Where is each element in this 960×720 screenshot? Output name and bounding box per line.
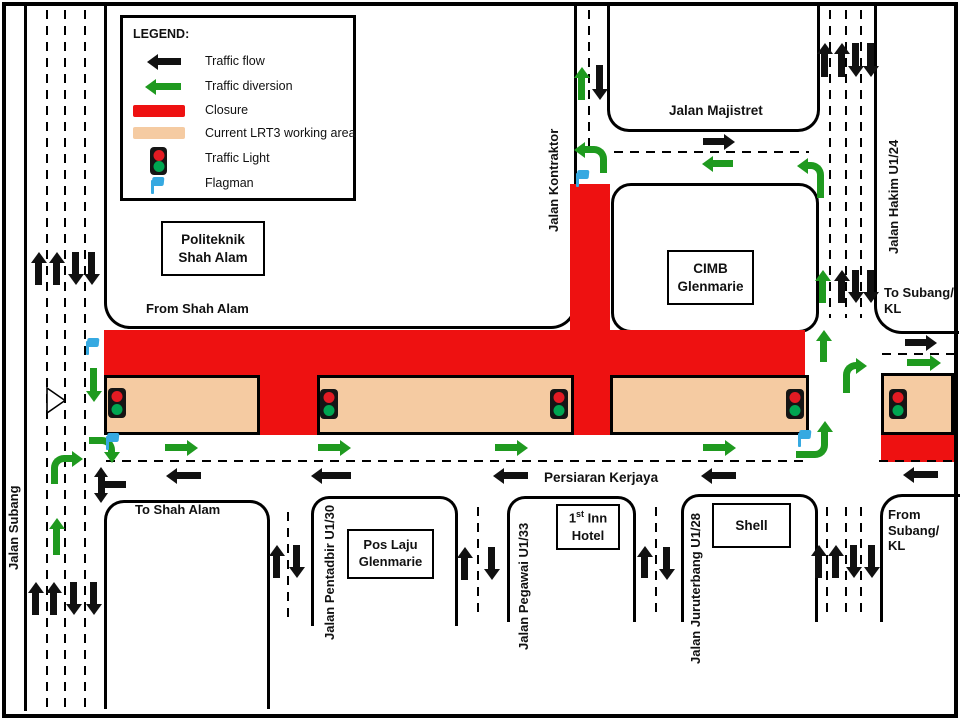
- legend-item-label: Traffic flow: [205, 54, 265, 68]
- politeknik-line2: Shah Alam: [178, 249, 247, 267]
- legend-item-label: Traffic diversion: [205, 79, 293, 93]
- diversion-turn-arrow: [808, 162, 824, 198]
- red-light: [324, 392, 335, 403]
- flagman-icon: [86, 338, 100, 355]
- lane-divider: [655, 507, 657, 613]
- legend-panel: LEGEND: Traffic flow Traffic diversion C…: [120, 15, 356, 201]
- red-light: [790, 392, 801, 403]
- traffic-flow-arrow: [488, 547, 495, 569]
- lane-divider: [588, 10, 590, 150]
- flag-cloth: [152, 177, 165, 186]
- traffic-diversion-arrow: [907, 359, 930, 366]
- traffic-flow-arrow: [596, 65, 603, 89]
- traffic-flow-arrow: [72, 252, 79, 274]
- traffic-light-icon: [320, 389, 338, 419]
- traffic-flow-arrow: [70, 582, 77, 604]
- jalan-majistret-label: Jalan Majistret: [669, 103, 763, 118]
- traffic-diversion-map: Politeknik Shah Alam CIMB Glenmarie Pos …: [0, 0, 960, 720]
- traffic-light-icon: [108, 388, 126, 418]
- green-light: [893, 405, 904, 416]
- flag-cloth: [799, 430, 812, 439]
- jalan-hakim-label: Jalan Hakim U1/24: [886, 140, 901, 254]
- traffic-flow-arrow: [90, 582, 97, 604]
- first-inn-line2: Hotel: [572, 528, 605, 545]
- jalan-pentadbir-label: Jalan Pentadbir U1/30: [322, 505, 337, 640]
- traffic-diversion-arrow: [703, 444, 725, 451]
- working-area-3: [610, 375, 809, 435]
- traffic-light-icon: [786, 389, 804, 419]
- to-subang-kl-label: To Subang/ KL: [884, 285, 954, 316]
- traffic-flow-arrow: [177, 472, 201, 479]
- jalan-subang-west-edge: [24, 4, 27, 711]
- traffic-flow-arrow: [703, 138, 724, 145]
- working-area-swatch: [133, 127, 185, 139]
- green-light: [112, 404, 123, 415]
- two-way-flow-arrow: [93, 467, 127, 502]
- traffic-flow-arrow: [867, 43, 874, 66]
- pos-laju-line1: Pos Laju: [363, 537, 417, 554]
- green-light: [153, 161, 164, 172]
- traffic-flow-arrow: [32, 593, 39, 615]
- working-area-1: [104, 375, 260, 435]
- from-subang-kl-label: From Subang/ KL: [888, 507, 939, 554]
- red-light: [153, 150, 164, 161]
- cimb-line1: CIMB: [693, 260, 728, 278]
- traffic-diversion-arrow: [165, 444, 187, 451]
- arrow-stem: [104, 481, 126, 488]
- legend-item-label: Flagman: [205, 176, 254, 190]
- to-shah-alam-label: To Shah Alam: [135, 502, 220, 517]
- first-inn-line1: 1st Inn: [569, 509, 607, 527]
- lane-divider: [477, 507, 479, 613]
- road-block-to-shah-alam: [104, 500, 270, 709]
- traffic-flow-arrow: [663, 547, 670, 569]
- traffic-flow-arrow: [712, 472, 736, 479]
- from-shah-alam-label: From Shah Alam: [146, 301, 249, 316]
- traffic-flow-arrow: [838, 54, 845, 77]
- first-inn-hotel-box: 1st Inn Hotel: [556, 504, 620, 550]
- traffic-flow-arrow: [905, 339, 926, 346]
- flagman-icon: [106, 433, 120, 450]
- traffic-flow-arrow: [641, 557, 648, 578]
- closure-east: [881, 434, 954, 462]
- traffic-flow-arrow: [88, 252, 95, 274]
- politeknik-line1: Politeknik: [181, 231, 245, 249]
- traffic-flow-arrow: [838, 281, 845, 303]
- closure-kontraktor: [570, 184, 610, 330]
- lane-divider: [46, 10, 48, 710]
- working-area-2: [317, 375, 574, 435]
- traffic-flow-arrow: [293, 545, 300, 567]
- traffic-diversion-arrow: [495, 444, 517, 451]
- red-light: [554, 392, 565, 403]
- yield-triangle-icon: [46, 387, 66, 414]
- center-line-persiaran-kerjaya: [106, 460, 804, 462]
- diversion-turn-arrow: [843, 362, 856, 393]
- pos-laju-line2: Glenmarie: [359, 554, 423, 571]
- red-light: [112, 391, 123, 402]
- lane-divider: [860, 507, 862, 613]
- flagman-icon: [576, 170, 590, 187]
- traffic-diversion-arrow: [820, 341, 827, 362]
- jalan-subang-label: Jalan Subang: [6, 485, 21, 570]
- traffic-flow-arrow: [868, 545, 875, 567]
- shell-label: Shell: [735, 517, 767, 535]
- green-light: [554, 405, 565, 416]
- jalan-pegawai-label: Jalan Pegawai U1/33: [516, 523, 531, 650]
- legend-item-label: Traffic Light: [205, 151, 270, 165]
- flag-cloth: [107, 433, 120, 442]
- closure-gap-2: [572, 375, 610, 435]
- traffic-diversion-arrow: [53, 529, 60, 555]
- red-light: [893, 392, 904, 403]
- politeknik-box: Politeknik Shah Alam: [161, 221, 265, 276]
- traffic-flow-arrow: [35, 263, 42, 285]
- traffic-flow-arrow: [504, 472, 528, 479]
- traffic-flow-arrow: [815, 556, 822, 578]
- arrowhead-down: [94, 493, 108, 503]
- traffic-flow-arrow: [852, 270, 859, 292]
- traffic-flow-arrow: [867, 270, 874, 292]
- closure-gap-1: [258, 375, 318, 435]
- flag-cloth: [577, 170, 590, 179]
- traffic-light-icon: [150, 147, 167, 175]
- traffic-flow-arrow: [821, 54, 828, 77]
- lane-divider: [860, 10, 862, 318]
- traffic-flow-arrow: [322, 472, 351, 479]
- green-light: [324, 405, 335, 416]
- traffic-light-icon: [550, 389, 568, 419]
- center-line-east-exit: [882, 353, 954, 355]
- diversion-turn-arrow: [585, 146, 607, 173]
- legend-item-label: Closure: [205, 103, 248, 117]
- traffic-light-icon: [889, 389, 907, 419]
- traffic-flow-arrow: [914, 471, 938, 478]
- flagman-icon: [798, 430, 812, 447]
- traffic-flow-arrow: [832, 556, 839, 578]
- flagman-icon: [151, 177, 165, 194]
- traffic-diversion-arrow: [578, 78, 585, 100]
- traffic-flow-arrow-icon: [158, 58, 181, 65]
- jalan-kontraktor-label: Jalan Kontraktor: [546, 129, 561, 232]
- center-line-persiaran-kerjaya-east: [879, 460, 956, 462]
- persiaran-kerjaya-label: Persiaran Kerjaya: [544, 470, 658, 485]
- traffic-flow-arrow: [461, 558, 468, 580]
- shell-box: Shell: [712, 503, 791, 548]
- traffic-flow-arrow: [50, 593, 57, 615]
- cimb-box: CIMB Glenmarie: [667, 250, 754, 305]
- legend-title: LEGEND:: [133, 27, 189, 41]
- legend-item-label: Current LRT3 working area: [205, 126, 356, 140]
- traffic-diversion-arrow: [713, 160, 733, 167]
- green-light: [790, 405, 801, 416]
- traffic-flow-arrow: [53, 263, 60, 285]
- traffic-diversion-arrow: [90, 368, 97, 391]
- traffic-diversion-arrow: [819, 281, 826, 303]
- lane-divider: [845, 507, 847, 613]
- jalan-juruterbang-label: Jalan Juruterbang U1/28: [688, 513, 703, 664]
- closure-swatch: [133, 105, 185, 117]
- traffic-flow-arrow: [273, 556, 280, 578]
- traffic-diversion-arrow: [318, 444, 340, 451]
- flag-cloth: [87, 338, 100, 347]
- cimb-line2: Glenmarie: [677, 278, 743, 296]
- traffic-flow-arrow: [850, 545, 857, 567]
- pos-laju-box: Pos Laju Glenmarie: [347, 529, 434, 579]
- traffic-diversion-arrow-icon: [156, 83, 181, 90]
- lane-divider: [826, 507, 828, 613]
- lane-divider: [287, 512, 289, 620]
- traffic-flow-arrow: [852, 43, 859, 66]
- center-line-majistret: [614, 151, 809, 153]
- closure-main-band: [104, 330, 805, 377]
- diversion-turn-arrow: [51, 455, 72, 484]
